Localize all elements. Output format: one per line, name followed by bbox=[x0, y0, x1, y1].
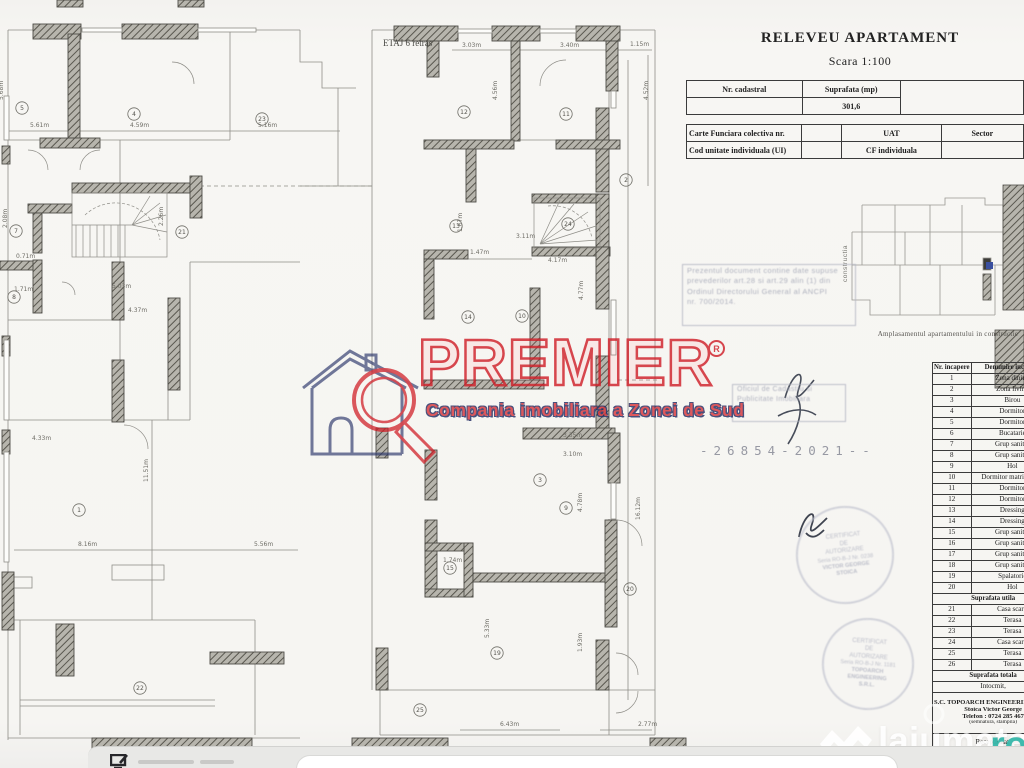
cadastral-header-cell: Nr. cadastral bbox=[687, 81, 803, 98]
table-row: 16Grup sanitar bbox=[933, 539, 1024, 550]
table-row: 19Spalatorie bbox=[933, 572, 1024, 583]
dimension-label: 16.12m bbox=[635, 497, 642, 520]
plan-windows bbox=[4, 28, 616, 562]
page-title: RELEVEU APARTAMENT bbox=[700, 30, 1020, 47]
plan-outlines bbox=[8, 30, 655, 740]
table-row: 1Zona dining bbox=[933, 374, 1024, 385]
room-number-text: 5 bbox=[20, 105, 24, 112]
rooms-table: Nr. incapere Denumire incapere 1Zona din… bbox=[932, 362, 1024, 763]
table-row: 2Zona living bbox=[933, 385, 1024, 396]
cf-table: Carte Funciara colectiva nr. UAT Sector … bbox=[686, 124, 1024, 159]
room-number-text: 13 bbox=[452, 223, 460, 230]
dimension-label: 5.61m bbox=[30, 122, 49, 129]
table-row: 6Bucatarie bbox=[933, 429, 1024, 440]
location-plan-caption: Amplasamentul apartamentului in construc… bbox=[858, 330, 1024, 338]
table-row: 17Grup sanitar bbox=[933, 550, 1024, 561]
dimension-label: 4.33m bbox=[32, 435, 51, 442]
room-number-text: 19 bbox=[493, 650, 501, 657]
dimension-label: 3.03m bbox=[462, 42, 481, 49]
table-row: 26Terasa bbox=[933, 660, 1024, 671]
dimension-label: 3.11m bbox=[516, 233, 535, 240]
room-number-text: 1 bbox=[77, 507, 81, 514]
cf-individuala-cell: CF individuala bbox=[842, 142, 942, 159]
cadastral-value-cell bbox=[687, 98, 803, 115]
address-cell bbox=[900, 81, 1023, 115]
room-number-text: 3 bbox=[538, 477, 542, 484]
table-row: 24Casa scarii bbox=[933, 638, 1024, 649]
dimension-label: 5.68m bbox=[0, 81, 5, 100]
scanned-floorplan-page: 5.61m4.59m5.16m3.03m3.40m1.15m5.68m4.56m… bbox=[0, 0, 1024, 768]
table-row: 5Dormitor bbox=[933, 418, 1024, 429]
dimension-label: 2.08m bbox=[2, 209, 9, 228]
dimension-label: 3.40m bbox=[560, 42, 579, 49]
rooms-col2-header: Denumire incapere bbox=[971, 363, 1024, 374]
dimension-label: 3.35m bbox=[563, 432, 582, 439]
dimension-label: 4.77m bbox=[578, 281, 585, 300]
dimension-label: 5.33m bbox=[484, 619, 491, 638]
room-number-text: 14 bbox=[464, 314, 472, 321]
sector-cell: Sector bbox=[941, 125, 1023, 142]
table-row: 18Grup sanitar bbox=[933, 561, 1024, 572]
table-row: 20Hol bbox=[933, 583, 1024, 594]
illegible-label-text bbox=[138, 760, 194, 764]
stamp-text-line: S.R.L. bbox=[858, 682, 874, 690]
executant-author: Stoica Victor George bbox=[934, 707, 1024, 714]
executant-sign_note: (semnatura, stampila) bbox=[934, 720, 1024, 726]
executant-phone: Telefon : 0724 285 467 bbox=[934, 714, 1024, 721]
stamp-text-line: nr. 700/2014. bbox=[687, 297, 851, 306]
table-row: Suprafata utila bbox=[933, 594, 1024, 605]
room-number-text: 15 bbox=[446, 565, 454, 572]
executant-company: S.C. TOPOARCH ENGINEERING S.R.L. bbox=[934, 700, 1024, 707]
dimension-label: 4.59m bbox=[130, 122, 149, 129]
stamp-text-line: Publicitate Imobiliara bbox=[737, 396, 841, 405]
scale-label: Scara 1:100 bbox=[700, 54, 1020, 69]
dimension-label: 6.43m bbox=[500, 721, 519, 728]
stamp-text-line: prevederilor art.28 si art.29 alin (1) d… bbox=[687, 276, 851, 285]
dimension-label: 1.15m bbox=[630, 41, 649, 48]
dimension-label: 11.51m bbox=[143, 459, 150, 482]
table-row: 21Casa scarii bbox=[933, 605, 1024, 616]
dimension-label: 1.47m bbox=[470, 249, 489, 256]
table-row: 15Grup sanitar bbox=[933, 528, 1024, 539]
room-number-text: 21 bbox=[178, 229, 186, 236]
uat-cell: UAT bbox=[842, 125, 942, 142]
staircase-left bbox=[72, 193, 167, 257]
dimension-label: 2.77m bbox=[638, 721, 657, 728]
room-number-text: 8 bbox=[12, 294, 16, 301]
executant-block: S.C. TOPOARCH ENGINEERING S.R.L.Stoica V… bbox=[933, 693, 1024, 734]
dimension-label: 4.17m bbox=[548, 257, 567, 264]
table-row: 4Dormitor bbox=[933, 407, 1024, 418]
table-row: 9Hol bbox=[933, 462, 1024, 473]
rooms-col1-header: Nr. incapere bbox=[933, 363, 972, 374]
cod-unitate-cell: Cod unitate individuala (UI) bbox=[687, 142, 802, 159]
table-row: 12Dormitor bbox=[933, 495, 1024, 506]
table-row: 7Grup sanitar bbox=[933, 440, 1024, 451]
room-number-text: 22 bbox=[136, 685, 144, 692]
room-number-text: 10 bbox=[518, 313, 526, 320]
room-number-text: 25 bbox=[416, 707, 424, 714]
area-header-cell: Suprafata (mp) bbox=[802, 81, 900, 98]
floor-label: ETAJ 6 retras bbox=[383, 38, 433, 48]
stamp-text-line: Ordinul Directorului General al ANCPI bbox=[687, 287, 851, 296]
dimension-label: 0.71m bbox=[16, 253, 35, 260]
cadastral-table: Nr. cadastral Suprafata (mp) 301,6 bbox=[686, 80, 1024, 115]
dimension-label: 4.78m bbox=[577, 493, 584, 512]
room-number-text: 9 bbox=[564, 505, 568, 512]
table-row: Intocmit, bbox=[933, 682, 1024, 693]
room-number-text: 2 bbox=[624, 177, 628, 184]
stamp-text-line: STOICA bbox=[836, 569, 858, 578]
table-row: Suprafata totala bbox=[933, 671, 1024, 682]
table-row: 14Dressing bbox=[933, 517, 1024, 528]
room-number-text: 4 bbox=[132, 111, 136, 118]
room-number-text: 11 bbox=[562, 111, 570, 118]
table-row: 13Dressing bbox=[933, 506, 1024, 517]
dimension-label: 4.56m bbox=[492, 81, 499, 100]
table-row: 25Terasa bbox=[933, 649, 1024, 660]
table-row: 22Terasa bbox=[933, 616, 1024, 627]
dimension-label: 4.52m bbox=[643, 81, 650, 100]
table-row: 10Dormitor matrimonial bbox=[933, 473, 1024, 484]
table-row: 3Birou bbox=[933, 396, 1024, 407]
room-number-text: 23 bbox=[258, 116, 266, 123]
location-plan bbox=[852, 185, 1024, 388]
ancpi-stamp: Prezentul document contine date supusepr… bbox=[682, 264, 856, 326]
dimension-label: 5.03m bbox=[112, 283, 131, 290]
illegible-label-text bbox=[200, 760, 234, 764]
monitor-icon[interactable] bbox=[110, 754, 128, 768]
dimension-label: 2.26m bbox=[158, 207, 165, 226]
room-number-text: 20 bbox=[626, 586, 634, 593]
site-bottom-bar bbox=[88, 746, 1024, 768]
document-number: -26854-2021-- bbox=[700, 443, 876, 458]
room-number-text: 12 bbox=[460, 109, 468, 116]
dimension-label: 5.56m bbox=[254, 541, 273, 548]
room-number-text: 24 bbox=[564, 221, 572, 228]
table-row: 23Terasa bbox=[933, 627, 1024, 638]
dimension-label: 4.37m bbox=[128, 307, 147, 314]
search-input[interactable] bbox=[296, 755, 898, 768]
dimension-label: 1.93m bbox=[577, 633, 584, 652]
carte-funciara-cell: Carte Funciara colectiva nr. bbox=[687, 125, 802, 142]
dimension-label: 8.16m bbox=[78, 541, 97, 548]
area-value-cell: 301,6 bbox=[802, 98, 900, 115]
table-row: 11Dormitor bbox=[933, 484, 1024, 495]
dimension-label: 3.10m bbox=[563, 451, 582, 458]
table-row: 8Grup sanitar bbox=[933, 451, 1024, 462]
stamp-text-line: Prezentul document contine date supuse bbox=[687, 266, 851, 275]
room-number-text: 7 bbox=[14, 228, 18, 235]
registry-stamp: Oficiul de Cadastru siPublicitate Imobil… bbox=[732, 384, 846, 422]
stamp-text-line: Oficiul de Cadastru si bbox=[737, 386, 841, 395]
